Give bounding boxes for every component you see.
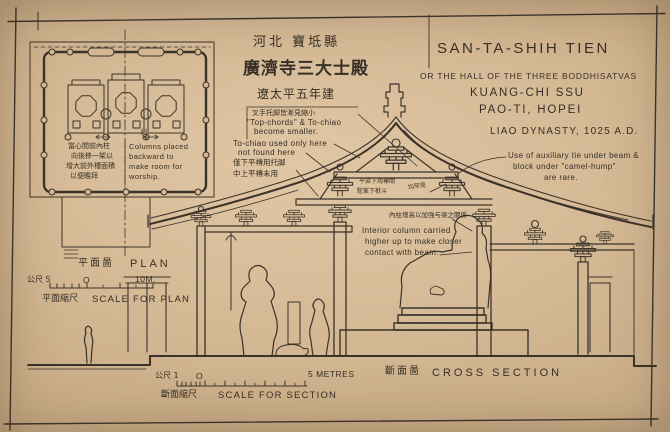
statue-base-octagon [116, 93, 136, 113]
note-column-cn: 內柱增高以加強与梁之關係 [389, 211, 467, 219]
plan-scale-caption-cn: 平面縮尺 [42, 294, 78, 305]
note-tie-cn-2: 駝峯下栿斗 [357, 188, 387, 196]
note-tie-en-2: block under "camel-hump" [513, 162, 616, 172]
note-column-en-3: contact with beam. [365, 248, 439, 258]
note-column-en-2: higher up to make closer [365, 237, 462, 247]
plan-note-en-3: make room for [129, 162, 183, 171]
plan-scale-zero: O [83, 275, 90, 286]
section-scale-caption-en: SCALE FOR SECTION [218, 390, 337, 402]
rear-door [588, 277, 612, 352]
title-subtitle-en: OR THE HALL OF THE THREE BODDHISATVAS [420, 71, 637, 82]
title-main-en: SAN-TA-SHIH TIEN [437, 40, 610, 59]
plan-note-cn-3: 增大前外槽面積 [66, 162, 115, 171]
scale-figure [85, 326, 93, 363]
note-tie-en-3: are rare. [544, 173, 578, 183]
plan-door-panel [88, 48, 114, 56]
eave-column-left [197, 226, 205, 356]
plan-scale-left: 公尺 5 [27, 275, 51, 285]
section-label-en: CROSS SECTION [432, 367, 562, 381]
title-place-en: PAO-TI, HOPEI [479, 103, 582, 117]
architectural-plate: 河北 寶坻縣 廣濟寺三大士殿 遼太平五年建 SAN-TA-SHIH TIEN O… [0, 0, 670, 432]
truss-struts [320, 147, 472, 199]
note-purlin-cn-1: 僅下平槫用托脚 [233, 158, 286, 167]
note-tie-en-1: Use of auxiliary tie under beam & [508, 151, 639, 161]
attendant-statue [310, 299, 330, 356]
section-walls [124, 250, 634, 356]
plan-note-cn-2: 向後移一架以 [71, 152, 113, 161]
eave-column-right [578, 262, 588, 354]
plan-note-cn-1: 當心間前內柱 [68, 142, 110, 151]
note-tie-cn-1: 平梁下用襻間 [359, 178, 395, 186]
plan-terrace [62, 197, 150, 247]
title-temple-en: KUANG-CHI SSU [470, 86, 585, 100]
plan-note-en-2: backward to [129, 152, 174, 161]
section-scale-caption-cn: 斷面縮尺 [161, 390, 197, 401]
note-chashou-cn: 叉手托脚皆漸見縮小 [252, 109, 315, 118]
ridge-finial [384, 84, 405, 117]
title-main-cn: 廣濟寺三大士殿 [243, 59, 369, 80]
guardian-halberd [226, 232, 236, 310]
plan-scale-right: 10M. [135, 274, 156, 285]
title-date-cn: 遼太平五年建 [257, 87, 335, 102]
plan-platform-outline [30, 42, 214, 197]
plan-stairs [64, 250, 78, 258]
altar-platform [340, 308, 528, 356]
bodhisattva-hand [430, 286, 444, 295]
statue-base-octagon [156, 96, 176, 116]
title-dynasty-en: LIAO DYNASTY, 1025 A.D. [490, 126, 639, 139]
statue-base-octagon [76, 96, 96, 116]
section-scale-zero: O [196, 371, 203, 382]
plan-note-en-1: Columns placed [129, 142, 188, 151]
stele-on-tortoise [276, 302, 308, 356]
note-chashou-en-2: become smaller. [254, 127, 318, 137]
section-label-cn: 斷面啚 [385, 366, 421, 379]
section-scale-left: 公尺 1 [155, 371, 179, 381]
title-region-cn: 河北 寶坻縣 [253, 35, 340, 51]
plan-door-panel [138, 48, 164, 56]
plan-scale-caption-en: SCALE FOR PLAN [92, 294, 190, 306]
plan-note-en-4: worship. [129, 172, 160, 181]
section-scale-bar [177, 381, 307, 386]
note-tochiao-2: not found here [238, 148, 295, 158]
note-purlin-cn-2: 中上平槫未用 [233, 169, 278, 178]
section-scale-right: 5 METRES [308, 369, 355, 380]
note-column-en-1: Interior column carried [362, 226, 451, 236]
plan-label-cn: 平面啚 [78, 258, 114, 271]
plan-note-cn-4: 以便瞻拜 [70, 172, 98, 181]
plan-altars [68, 74, 184, 133]
plan-label-en: PLAN [130, 258, 171, 272]
guardian-statue [240, 266, 277, 357]
